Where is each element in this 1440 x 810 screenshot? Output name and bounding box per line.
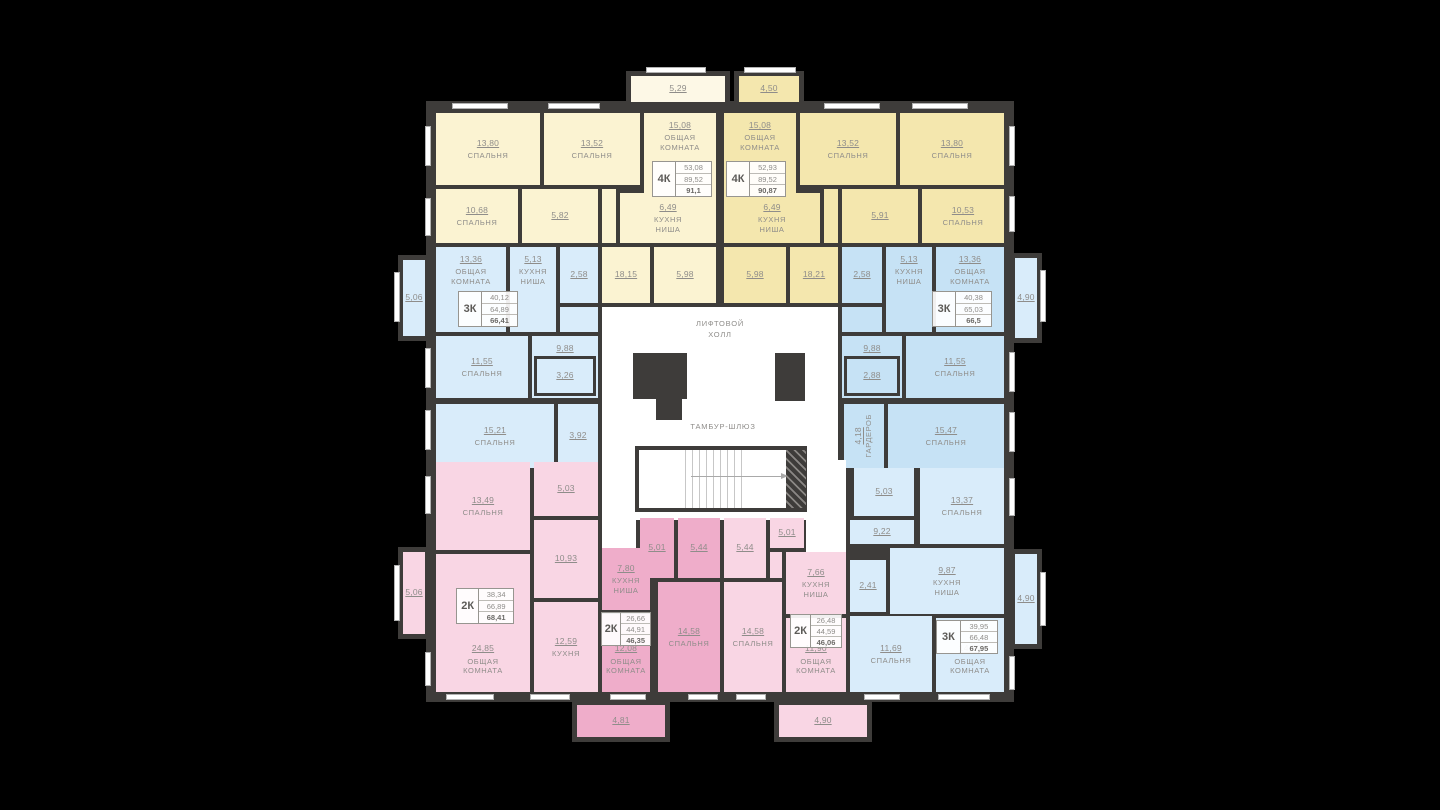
apartment-type: 2К xyxy=(791,615,811,647)
room-area: 5,06 xyxy=(405,587,422,598)
apartment-areas: 53,0889,5291,1 xyxy=(676,162,711,196)
apartment-area-value: 91,1 xyxy=(676,185,711,196)
room: 5,98 xyxy=(654,247,716,303)
apartment-area-value: 66,41 xyxy=(482,315,517,326)
window xyxy=(425,126,431,166)
window xyxy=(394,565,400,621)
room-area: 24,85 xyxy=(463,643,503,654)
apartment-area-value: 53,08 xyxy=(676,162,711,174)
room-name: СПАЛЬНЯ xyxy=(926,438,967,448)
room-label: 13,80СПАЛЬНЯ xyxy=(468,138,509,161)
window xyxy=(446,694,494,700)
apartment-areas: 52,9389,5290,87 xyxy=(750,162,785,196)
room-label: 11,69СПАЛЬНЯ xyxy=(871,643,912,666)
room-area: 13,52 xyxy=(572,138,613,149)
room-label: 4,81 xyxy=(612,715,629,726)
apartment-info-table: 4К52,9389,5290,87 xyxy=(726,161,786,197)
room xyxy=(842,307,882,332)
room-label: 10,53СПАЛЬНЯ xyxy=(943,205,984,228)
apartment-type: 4К xyxy=(727,162,750,196)
room-label: 3,92 xyxy=(569,430,586,441)
room: 5,13КУХНЯ НИША xyxy=(886,247,932,332)
room: 18,15 xyxy=(602,247,650,303)
apartment-info-table: 2К38,3466,8968,41 xyxy=(456,588,514,624)
room-name: СПАЛЬНЯ xyxy=(669,639,710,649)
room: 5,44 xyxy=(678,518,720,578)
room-name: СПАЛЬНЯ xyxy=(457,218,498,228)
room: 5,01 xyxy=(640,518,674,578)
window xyxy=(425,198,431,236)
room-label: 13,52СПАЛЬНЯ xyxy=(828,138,869,161)
elevator-shaft xyxy=(633,353,687,399)
room-label: 2,58 xyxy=(853,269,870,280)
room-area: 4,50 xyxy=(760,83,777,94)
balcony: 5,06 xyxy=(398,255,430,341)
shaft-hatch xyxy=(786,450,806,508)
apartment-info-table: 3К39,9566,4867,95 xyxy=(936,620,998,654)
window xyxy=(425,348,431,388)
room-name: СПАЛЬНЯ xyxy=(935,369,976,379)
window xyxy=(1009,352,1015,392)
room: 14,58СПАЛЬНЯ xyxy=(658,582,720,692)
room-area: 18,15 xyxy=(615,269,637,280)
room-label: 18,15 xyxy=(615,269,637,280)
room: 3,92 xyxy=(558,404,598,468)
apartment-area-value: 67,95 xyxy=(961,643,997,653)
room-area: 9,88 xyxy=(863,343,880,354)
window xyxy=(938,694,990,700)
apartment-info-table: 3К40,1264,8966,41 xyxy=(458,291,518,327)
room: 2,58 xyxy=(560,247,598,303)
room: 10,93 xyxy=(534,520,598,598)
window xyxy=(394,272,400,322)
room-label: 15,47СПАЛЬНЯ xyxy=(926,425,967,448)
floor-plan-canvas: 13,80СПАЛЬНЯ13,52СПАЛЬНЯ15,08ОБЩАЯ КОМНА… xyxy=(0,0,1440,810)
window xyxy=(1009,126,1015,166)
room: 2,41 xyxy=(850,560,886,612)
room-area: 5,01 xyxy=(778,527,795,538)
window xyxy=(1009,656,1015,690)
room-area: 9,22 xyxy=(873,526,890,537)
apartment-area-value: 39,95 xyxy=(961,621,997,632)
balcony: 4,90 xyxy=(1010,549,1042,649)
room-label: 12,59КУХНЯ xyxy=(552,636,580,659)
apartment-area-value: 52,93 xyxy=(750,162,785,174)
room-label: 5,44 xyxy=(736,542,753,553)
room-name: СПАЛЬНЯ xyxy=(462,369,503,379)
window xyxy=(1009,196,1015,232)
room-area: 3,26 xyxy=(556,370,573,381)
room: 5,82 xyxy=(522,189,598,243)
room-name: КУХНЯ НИША xyxy=(802,580,830,600)
room-name: ОБЩАЯ КОМНАТА xyxy=(950,657,990,677)
apartment-area-value: 44,59 xyxy=(811,626,841,637)
room-label: 4,90 xyxy=(1017,292,1034,303)
room-area: 9,88 xyxy=(556,343,573,354)
room: 11,69СПАЛЬНЯ xyxy=(850,616,932,692)
room-area: 18,21 xyxy=(803,269,825,280)
room-label: 9,88 xyxy=(556,343,573,354)
room: 18,21 xyxy=(790,247,838,303)
balcony: 5,29 xyxy=(626,71,730,107)
window xyxy=(548,103,600,109)
stair-steps xyxy=(685,450,745,508)
room-label: 5,98 xyxy=(746,269,763,280)
room xyxy=(602,189,616,243)
room: 10,68СПАЛЬНЯ xyxy=(436,189,518,243)
room-label: 5,82 xyxy=(551,210,568,221)
room-area: 15,08 xyxy=(740,120,780,131)
room-name: ОБЩАЯ КОМНАТА xyxy=(740,133,780,153)
apartment-areas: 26,4844,5946,06 xyxy=(811,615,841,647)
apartment-areas: 40,1264,8966,41 xyxy=(482,292,517,326)
room-name: ОБЩАЯ КОМНАТА xyxy=(950,267,990,287)
window xyxy=(530,694,570,700)
room: 5,91 xyxy=(842,189,918,243)
room: 5,03 xyxy=(534,462,598,516)
apartment-areas: 40,3865,0366,5 xyxy=(956,292,991,326)
room: 10,53СПАЛЬНЯ xyxy=(922,189,1004,243)
room-label: 5,29 xyxy=(669,83,686,94)
room-area: 2,88 xyxy=(863,370,880,381)
room: 7,66КУХНЯ НИША xyxy=(786,552,846,614)
room-area: 14,58 xyxy=(733,626,774,637)
room-area: 7,80 xyxy=(612,563,640,574)
room: 9,87КУХНЯ НИША xyxy=(890,548,1004,614)
room-area: 9,87 xyxy=(933,565,961,576)
window xyxy=(610,694,646,700)
elevator-shaft xyxy=(656,398,682,420)
room-area: 5,98 xyxy=(676,269,693,280)
room-label: 13,36ОБЩАЯ КОМНАТА xyxy=(451,254,491,287)
room: 6,49КУХНЯ НИША xyxy=(724,193,820,243)
room-area: 11,69 xyxy=(871,643,912,654)
room-name: КУХНЯ НИША xyxy=(895,267,923,287)
apartment-areas: 39,9566,4867,95 xyxy=(961,621,997,653)
room-area: 4,90 xyxy=(814,715,831,726)
balcony: 4,81 xyxy=(572,700,670,742)
room-label: 5,13КУХНЯ НИША xyxy=(895,254,923,287)
room: 2,88 xyxy=(844,356,900,396)
apartment-area-value: 26,66 xyxy=(621,613,650,624)
room-name: ОБЩАЯ КОМНАТА xyxy=(660,133,700,153)
room-name: СПАЛЬНЯ xyxy=(942,508,983,518)
room: 3,26 xyxy=(534,356,596,396)
apartment-area-value: 65,03 xyxy=(956,304,991,316)
room: 15,21СПАЛЬНЯ xyxy=(436,404,554,468)
room: 6,49КУХНЯ НИША xyxy=(620,193,716,243)
room-area: 5,44 xyxy=(690,542,707,553)
room-label: 5,03 xyxy=(875,486,892,497)
room-area: 3,92 xyxy=(569,430,586,441)
room-label: 15,08ОБЩАЯ КОМНАТА xyxy=(740,120,780,153)
window xyxy=(646,67,706,73)
window xyxy=(744,67,796,73)
room-label: 4,50 xyxy=(760,83,777,94)
room: 2,58 xyxy=(842,247,882,303)
room-area: 14,58 xyxy=(669,626,710,637)
room-label: 10,93 xyxy=(555,553,577,564)
room: 9,22 xyxy=(850,520,914,544)
window xyxy=(425,652,431,686)
room-name: ОБЩАЯ КОМНАТА xyxy=(796,657,836,677)
room-label: 12,08ОБЩАЯ КОМНАТА xyxy=(606,643,646,676)
apartment-area-value: 40,12 xyxy=(482,292,517,304)
room-label: 14,58СПАЛЬНЯ xyxy=(733,626,774,649)
room-label: 24,85ОБЩАЯ КОМНАТА xyxy=(463,643,503,676)
room-area: 13,36 xyxy=(451,254,491,265)
balcony: 4,50 xyxy=(734,71,804,107)
room-name: СПАЛЬНЯ xyxy=(943,218,984,228)
room-name: ОБЩАЯ КОМНАТА xyxy=(463,657,503,677)
room-area: 4,90 xyxy=(1017,292,1034,303)
window xyxy=(1009,478,1015,516)
room-area: 11,55 xyxy=(935,356,976,367)
room: 5,03 xyxy=(854,468,914,516)
room: 11,55СПАЛЬНЯ xyxy=(906,336,1004,398)
room-label: 15,21СПАЛЬНЯ xyxy=(475,425,516,448)
apartment-area-value: 89,52 xyxy=(676,174,711,186)
room: 13,37СПАЛЬНЯ xyxy=(920,468,1004,544)
room-label: 7,66КУХНЯ НИША xyxy=(802,567,830,600)
room-area: 6,49 xyxy=(654,202,682,213)
window xyxy=(452,103,508,109)
room-label: 9,88 xyxy=(863,343,880,354)
room: 14,58СПАЛЬНЯ xyxy=(724,582,782,692)
balcony: 5,06 xyxy=(398,547,430,639)
room-area: 5,98 xyxy=(746,269,763,280)
room: 13,52СПАЛЬНЯ xyxy=(544,113,640,185)
apartment-area-value: 68,41 xyxy=(479,612,513,623)
apartment-area-value: 40,38 xyxy=(956,292,991,304)
room-name: КУХНЯ НИША xyxy=(654,215,682,235)
room-area: 5,91 xyxy=(871,210,888,221)
room-name: ОБЩАЯ КОМНАТА xyxy=(606,657,646,677)
room-label: 5,01 xyxy=(648,542,665,553)
room-name: КУХНЯ xyxy=(552,649,580,659)
room xyxy=(770,552,782,578)
room-label: 4,90 xyxy=(814,715,831,726)
apartment-area-value: 38,34 xyxy=(479,589,513,601)
window xyxy=(912,103,968,109)
room-area: 11,55 xyxy=(462,356,503,367)
window xyxy=(425,476,431,514)
room xyxy=(560,307,598,332)
apartment-area-value: 66,48 xyxy=(961,632,997,643)
room-label: 5,91 xyxy=(871,210,888,221)
window xyxy=(736,694,766,700)
room-area: 10,93 xyxy=(555,553,577,564)
window xyxy=(864,694,900,700)
room-area: 5,82 xyxy=(551,210,568,221)
room-label: 2,58 xyxy=(570,269,587,280)
room-name: КУХНЯ НИША xyxy=(933,578,961,598)
elevator-shaft xyxy=(775,353,805,401)
apartment-area-value: 66,89 xyxy=(479,601,513,613)
apartment-area-value: 66,5 xyxy=(956,315,991,326)
room-label: 5,06 xyxy=(405,587,422,598)
room-area: 4,90 xyxy=(1017,593,1034,604)
room: 4,18ГАРДЕРОБ xyxy=(844,404,884,468)
room-label: 5,98 xyxy=(676,269,693,280)
room-area: 5,44 xyxy=(736,542,753,553)
apartment-type: 2К xyxy=(457,589,479,623)
room-name: ГАРДЕРОБ xyxy=(864,414,874,458)
room: 5,01 xyxy=(770,518,804,548)
window xyxy=(1040,572,1046,626)
room-name: СПАЛЬНЯ xyxy=(468,151,509,161)
room-area: 5,03 xyxy=(557,483,574,494)
apartment-areas: 26,6644,9146,35 xyxy=(621,613,650,645)
apartment-type: 4К xyxy=(653,162,676,196)
floor-plan: 13,80СПАЛЬНЯ13,52СПАЛЬНЯ15,08ОБЩАЯ КОМНА… xyxy=(0,0,1440,810)
room-name: СПАЛЬНЯ xyxy=(733,639,774,649)
room-label: 9,87КУХНЯ НИША xyxy=(933,565,961,598)
room: 11,55СПАЛЬНЯ xyxy=(436,336,528,398)
room: 13,49СПАЛЬНЯ xyxy=(436,462,530,550)
room-label: 4,90 xyxy=(1017,593,1034,604)
apartment-area-value: 44,91 xyxy=(621,624,650,635)
room-label: 5,13КУХНЯ НИША xyxy=(519,254,547,287)
apartment-area-value: 64,89 xyxy=(482,304,517,316)
lift-hall-label: ЛИФТОВОЙ ХОЛЛ xyxy=(660,318,780,341)
room: 15,47СПАЛЬНЯ xyxy=(888,404,1004,468)
apartment-type: 3К xyxy=(933,292,956,326)
room-label: 6,49КУХНЯ НИША xyxy=(654,202,682,235)
room-label: 15,08ОБЩАЯ КОМНАТА xyxy=(660,120,700,153)
room-area: 7,66 xyxy=(802,567,830,578)
room-label: 5,06 xyxy=(405,292,422,303)
room-label: 18,21 xyxy=(803,269,825,280)
room-label: 5,44 xyxy=(690,542,707,553)
room-name: ОБЩАЯ КОМНАТА xyxy=(451,267,491,287)
room-area: 13,80 xyxy=(932,138,973,149)
room-area: 13,49 xyxy=(463,495,504,506)
room: 12,59КУХНЯ xyxy=(534,602,598,692)
room-label: 13,52СПАЛЬНЯ xyxy=(572,138,613,161)
room-name: КУХНЯ НИША xyxy=(612,576,640,596)
room: 5,44 xyxy=(724,518,766,578)
balcony: 4,90 xyxy=(1010,253,1042,343)
room: 13,80СПАЛЬНЯ xyxy=(436,113,540,185)
window xyxy=(1009,412,1015,452)
stair-direction-arrow xyxy=(691,476,787,477)
window xyxy=(1040,270,1046,322)
room-label: 6,49КУХНЯ НИША xyxy=(758,202,786,235)
room: 13,80СПАЛЬНЯ xyxy=(900,113,1004,185)
apartment-info-table: 2К26,4844,5946,06 xyxy=(790,614,842,648)
room-label: 2,88 xyxy=(863,370,880,381)
room-area: 13,36 xyxy=(950,254,990,265)
room-label: 14,58СПАЛЬНЯ xyxy=(669,626,710,649)
room-name: КУХНЯ НИША xyxy=(519,267,547,287)
room-label: 13,80СПАЛЬНЯ xyxy=(932,138,973,161)
room-area: 5,13 xyxy=(519,254,547,265)
apartment-area-value: 90,87 xyxy=(750,185,785,196)
staircase xyxy=(635,446,807,512)
room xyxy=(824,189,838,243)
room-area: 13,52 xyxy=(828,138,869,149)
apartment-area-value: 46,35 xyxy=(621,635,650,645)
room-area: 6,49 xyxy=(758,202,786,213)
room-label: 7,80КУХНЯ НИША xyxy=(612,563,640,596)
room-label: 10,68СПАЛЬНЯ xyxy=(457,205,498,228)
room-area: 4,81 xyxy=(612,715,629,726)
room-label: 5,03 xyxy=(557,483,574,494)
room-area: 5,13 xyxy=(895,254,923,265)
room-name: СПАЛЬНЯ xyxy=(463,508,504,518)
room-name: СПАЛЬНЯ xyxy=(828,151,869,161)
window xyxy=(824,103,880,109)
room-area: 5,06 xyxy=(405,292,422,303)
apartment-area-value: 26,48 xyxy=(811,615,841,626)
window xyxy=(425,410,431,450)
apartment-type: 3К xyxy=(459,292,482,326)
room-label: 9,22 xyxy=(873,526,890,537)
room-label: 13,49СПАЛЬНЯ xyxy=(463,495,504,518)
window xyxy=(688,694,718,700)
room-area: 5,01 xyxy=(648,542,665,553)
room-label: 13,36ОБЩАЯ КОМНАТА xyxy=(950,254,990,287)
room: 13,52СПАЛЬНЯ xyxy=(800,113,896,185)
room-label: 2,41 xyxy=(859,580,876,591)
room-area: 5,03 xyxy=(875,486,892,497)
room-name: СПАЛЬНЯ xyxy=(871,656,912,666)
room xyxy=(806,520,846,554)
room-area: 15,21 xyxy=(475,425,516,436)
apartment-info-table: 2К26,6644,9146,35 xyxy=(601,612,651,646)
room-area: 15,47 xyxy=(926,425,967,436)
room-label: 13,37СПАЛЬНЯ xyxy=(942,495,983,518)
apartment-type: 3К xyxy=(937,621,961,653)
room-name: КУХНЯ НИША xyxy=(758,215,786,235)
apartment-area-value: 46,06 xyxy=(811,637,841,647)
room-label: 4,18ГАРДЕРОБ xyxy=(853,414,876,458)
room-label: 11,55СПАЛЬНЯ xyxy=(935,356,976,379)
room: 5,98 xyxy=(724,247,786,303)
room-label: 11,55СПАЛЬНЯ xyxy=(462,356,503,379)
room-area: 10,53 xyxy=(943,205,984,216)
room-name: СПАЛЬНЯ xyxy=(572,151,613,161)
apartment-info-table: 4К53,0889,5291,1 xyxy=(652,161,712,197)
room-area: 2,41 xyxy=(859,580,876,591)
apartment-areas: 38,3466,8968,41 xyxy=(479,589,513,623)
room-area: 12,59 xyxy=(552,636,580,647)
apartment-area-value: 89,52 xyxy=(750,174,785,186)
tambour-label: ТАМБУР-ШЛЮЗ xyxy=(668,421,778,432)
room-area: 13,37 xyxy=(942,495,983,506)
room-area: 10,68 xyxy=(457,205,498,216)
apartment-info-table: 3К40,3865,0366,5 xyxy=(932,291,992,327)
room-name: СПАЛЬНЯ xyxy=(932,151,973,161)
room-area: 2,58 xyxy=(853,269,870,280)
room-name: СПАЛЬНЯ xyxy=(475,438,516,448)
room-label: 3,26 xyxy=(556,370,573,381)
room-label: 5,01 xyxy=(778,527,795,538)
room-area: 13,80 xyxy=(468,138,509,149)
room xyxy=(810,460,846,522)
apartment-type: 2К xyxy=(602,613,621,645)
room-area: 5,29 xyxy=(669,83,686,94)
room-label: 11,90ОБЩАЯ КОМНАТА xyxy=(796,643,836,676)
room-area: 2,58 xyxy=(570,269,587,280)
room-area: 4,18 xyxy=(853,414,864,458)
room-area: 15,08 xyxy=(660,120,700,131)
balcony: 4,90 xyxy=(774,700,872,742)
